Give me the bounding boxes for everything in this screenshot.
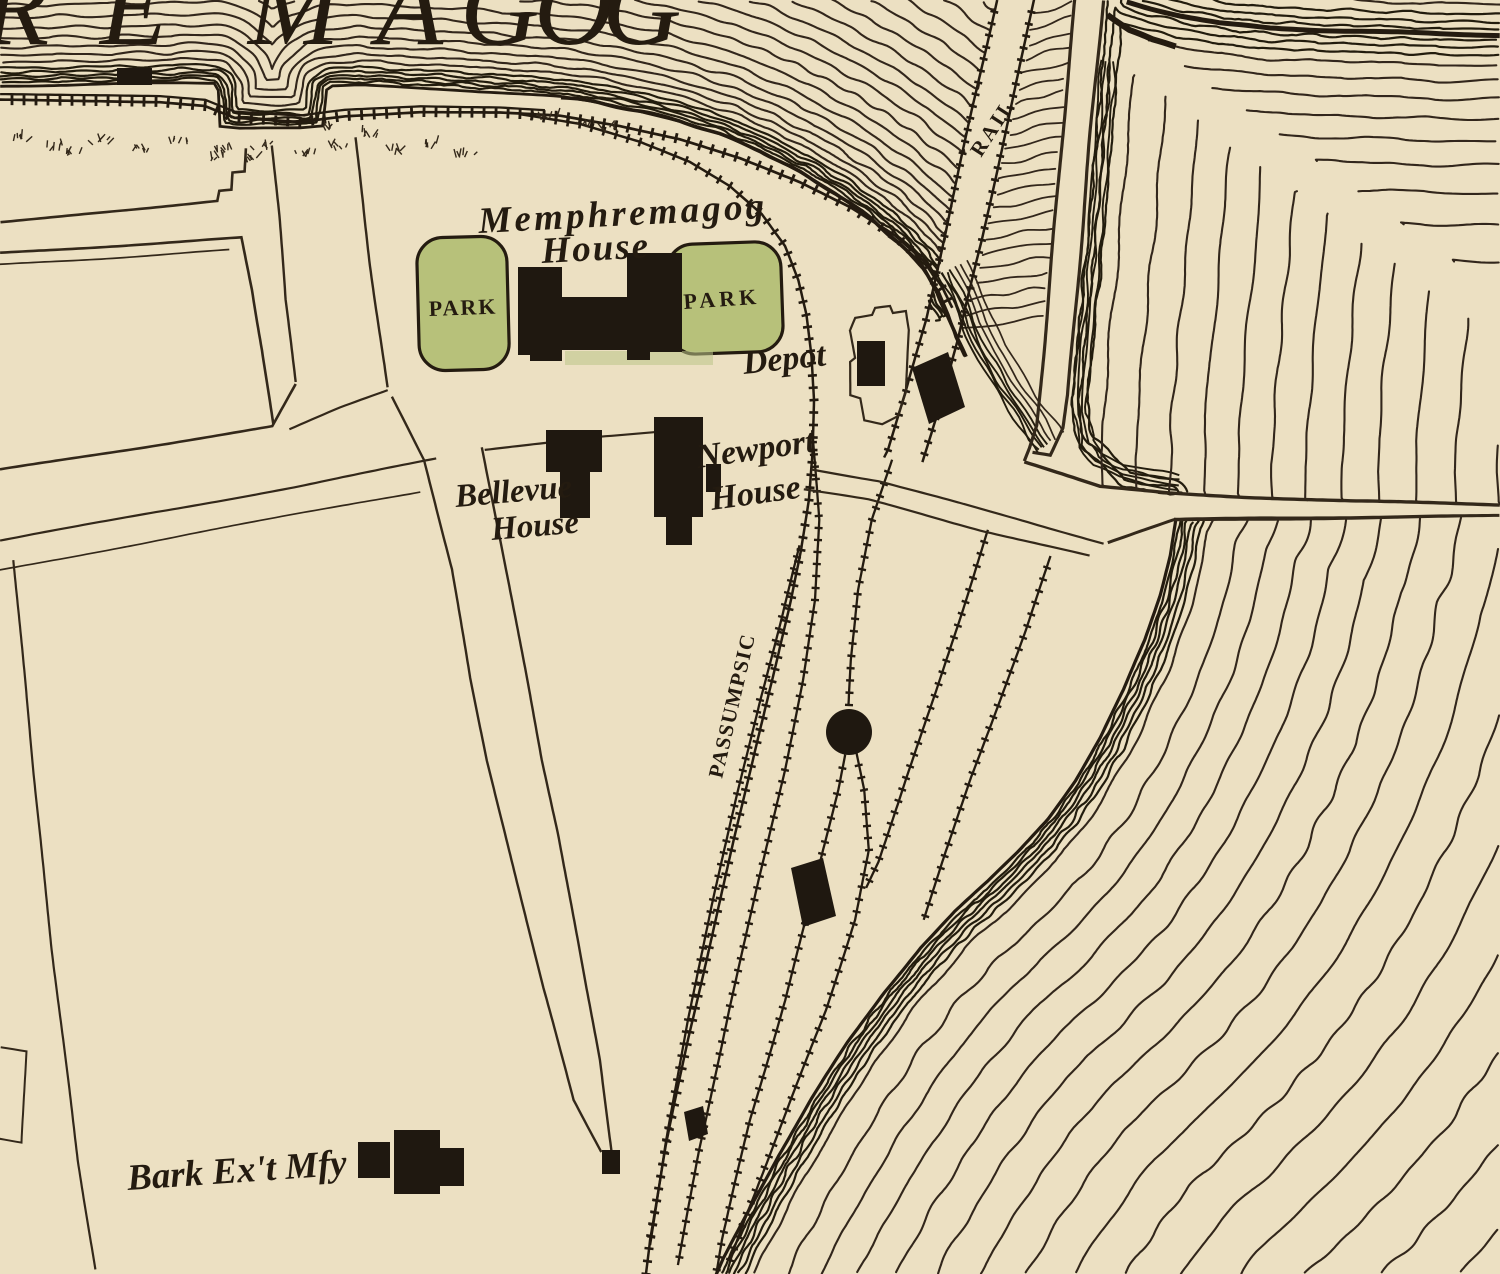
svg-text:G: G: [602, 0, 681, 68]
svg-text:PARK: PARK: [428, 294, 498, 321]
svg-text:R: R: [0, 0, 49, 68]
svg-text:PARK: PARK: [683, 284, 761, 314]
svg-text:M: M: [246, 0, 345, 68]
svg-text:G: G: [460, 0, 539, 68]
svg-text:E: E: [98, 0, 167, 68]
svg-text:A: A: [369, 0, 444, 68]
svg-text:House: House: [539, 225, 651, 272]
